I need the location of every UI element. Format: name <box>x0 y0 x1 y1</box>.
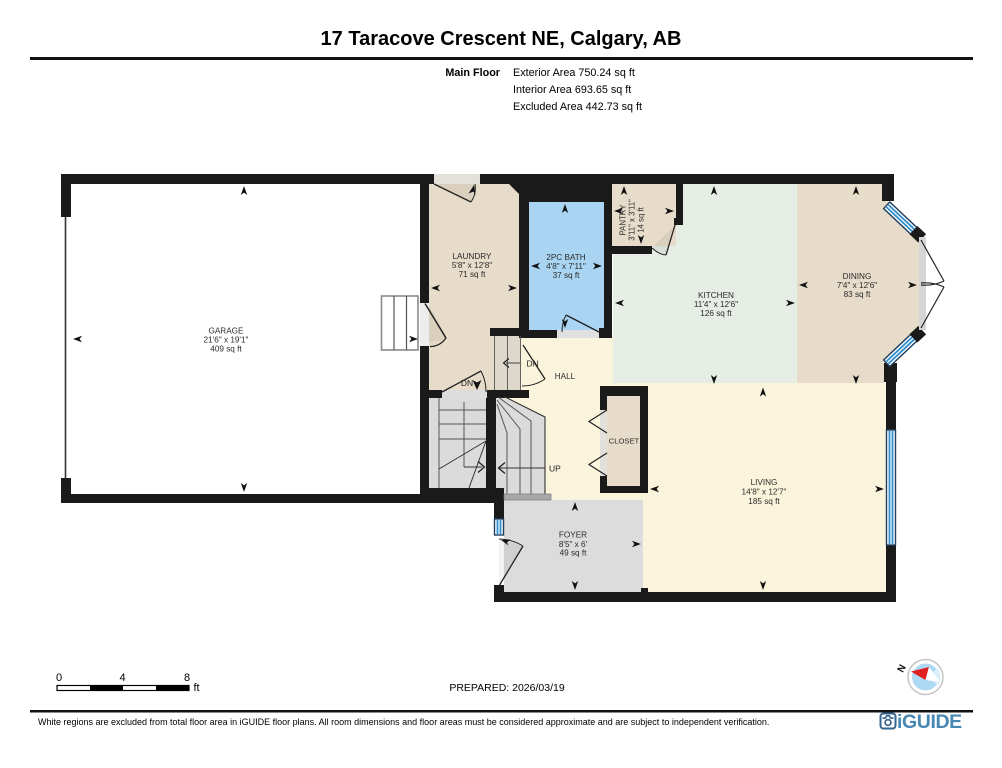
svg-text:HALL: HALL <box>555 372 576 381</box>
svg-text:21'6" x 19'1": 21'6" x 19'1" <box>204 336 249 345</box>
svg-text:LAUNDRY: LAUNDRY <box>453 252 493 261</box>
svg-text:KITCHEN: KITCHEN <box>698 291 734 300</box>
svg-text:FOYER: FOYER <box>559 531 587 540</box>
svg-text:409 sq ft: 409 sq ft <box>210 345 242 354</box>
svg-text:CLOSET: CLOSET <box>609 437 640 446</box>
svg-text:Exterior Area 750.24 sq ft: Exterior Area 750.24 sq ft <box>513 67 635 79</box>
svg-text:White regions are excluded fro: White regions are excluded from total fl… <box>38 717 769 727</box>
svg-text:17 Taracove Crescent NE, Calga: 17 Taracove Crescent NE, Calgary, AB <box>321 28 682 50</box>
svg-text:185 sq ft: 185 sq ft <box>748 497 780 506</box>
svg-text:83 sq ft: 83 sq ft <box>844 290 872 299</box>
svg-text:PANTRY: PANTRY <box>619 204 628 236</box>
svg-text:0: 0 <box>56 672 62 684</box>
svg-text:14 sq ft: 14 sq ft <box>637 206 646 232</box>
svg-text:8: 8 <box>184 672 190 684</box>
svg-text:49 sq ft: 49 sq ft <box>560 549 588 558</box>
svg-text:DN: DN <box>461 378 473 388</box>
svg-text:LIVING: LIVING <box>751 478 778 487</box>
svg-text:N: N <box>896 663 909 675</box>
svg-text:4: 4 <box>119 672 125 684</box>
svg-text:iGUIDE: iGUIDE <box>897 711 962 733</box>
svg-text:7'4" x 12'6": 7'4" x 12'6" <box>837 281 877 290</box>
svg-text:DINING: DINING <box>843 272 872 281</box>
svg-text:11'4" x 12'6": 11'4" x 12'6" <box>694 300 738 309</box>
svg-text:14'8" x 12'7": 14'8" x 12'7" <box>742 488 787 497</box>
svg-text:ft: ft <box>194 682 200 694</box>
svg-text:GARAGE: GARAGE <box>208 327 244 336</box>
svg-text:Main Floor: Main Floor <box>445 67 500 79</box>
svg-text:4'8" x 7'11": 4'8" x 7'11" <box>546 262 586 271</box>
svg-text:3'11" x 3'11": 3'11" x 3'11" <box>628 199 637 241</box>
svg-text:37 sq ft: 37 sq ft <box>553 271 581 280</box>
svg-text:PREPARED: 2026/03/19: PREPARED: 2026/03/19 <box>449 682 565 694</box>
svg-text:71 sq ft: 71 sq ft <box>459 270 487 279</box>
svg-text:Excluded Area 442.73 sq ft: Excluded Area 442.73 sq ft <box>513 101 642 113</box>
svg-text:Interior Area 693.65 sq ft: Interior Area 693.65 sq ft <box>513 84 631 96</box>
svg-text:126 sq ft: 126 sq ft <box>700 309 732 318</box>
svg-text:UP: UP <box>549 464 561 474</box>
svg-text:5'8" x 12'8": 5'8" x 12'8" <box>452 261 492 270</box>
svg-text:2PC BATH: 2PC BATH <box>546 253 586 262</box>
